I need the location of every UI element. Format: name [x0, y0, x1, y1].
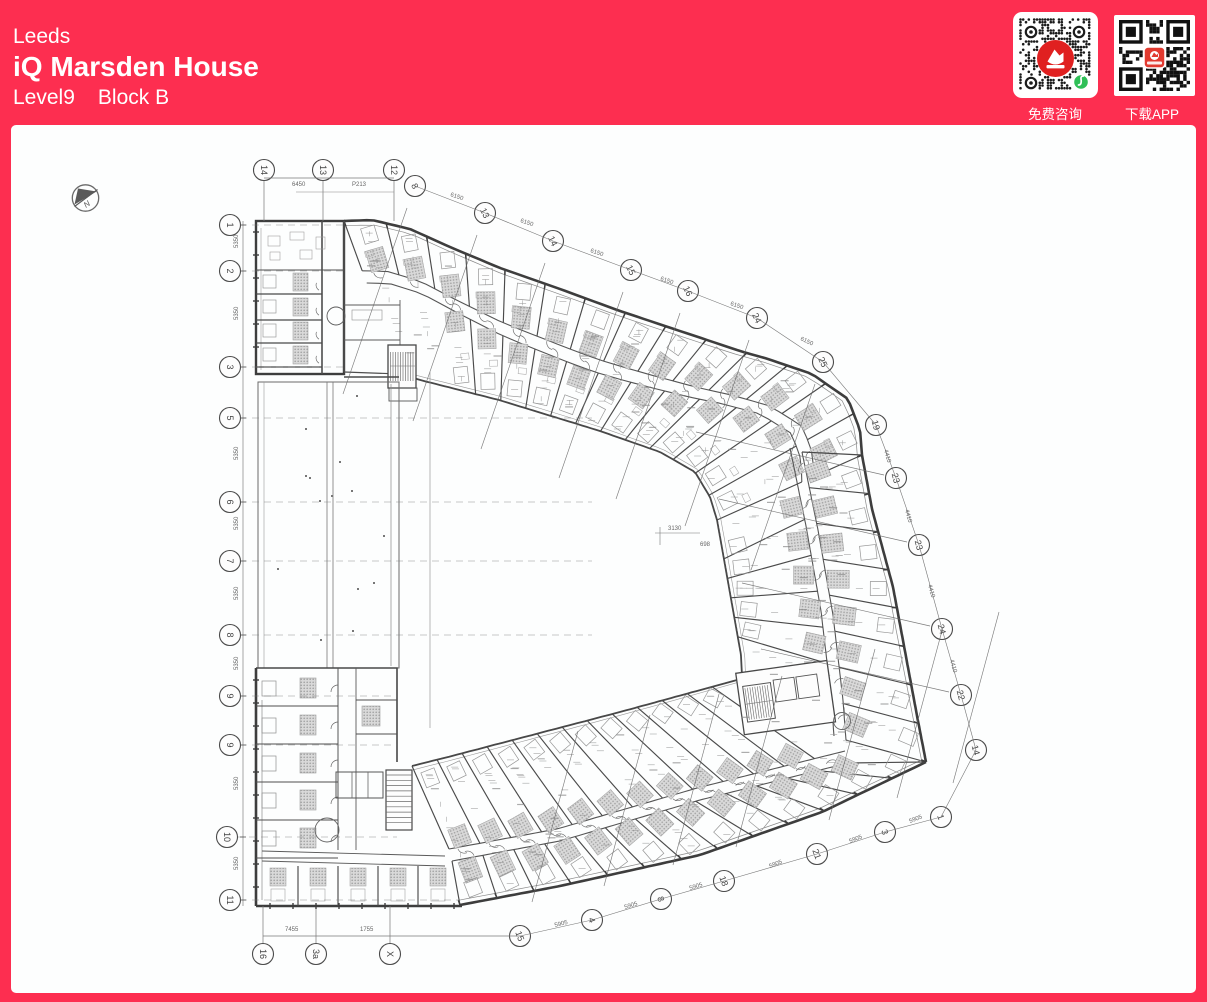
svg-text:5350: 5350	[234, 856, 240, 870]
svg-text:6150: 6150	[799, 336, 814, 347]
svg-text:12: 12	[389, 165, 399, 175]
svg-text:4410: 4410	[926, 584, 935, 599]
svg-text:1755: 1755	[360, 927, 374, 933]
svg-text:N: N	[82, 199, 92, 210]
svg-text:7455: 7455	[285, 927, 299, 933]
svg-text:5350: 5350	[234, 586, 240, 600]
svg-text:5905: 5905	[624, 901, 639, 911]
svg-text:5905: 5905	[769, 859, 784, 870]
svg-text:6: 6	[225, 499, 235, 504]
svg-text:9: 9	[225, 742, 235, 747]
svg-text:5350: 5350	[234, 776, 240, 790]
svg-text:6150: 6150	[589, 248, 604, 258]
svg-text:1: 1	[225, 222, 235, 227]
svg-text:698: 698	[700, 542, 711, 548]
svg-text:16: 16	[258, 949, 268, 959]
svg-text:14: 14	[259, 165, 269, 175]
svg-text:13: 13	[318, 165, 328, 175]
svg-text:P213: P213	[352, 182, 367, 188]
svg-text:3a: 3a	[311, 949, 321, 959]
svg-text:4410: 4410	[903, 509, 912, 524]
svg-text:6150: 6150	[659, 276, 674, 286]
svg-text:11: 11	[225, 895, 235, 904]
svg-text:5350: 5350	[234, 446, 240, 460]
svg-text:5350: 5350	[234, 656, 240, 670]
svg-text:5: 5	[225, 415, 235, 420]
svg-text:4410: 4410	[882, 449, 891, 464]
svg-text:6150: 6150	[519, 218, 534, 228]
svg-text:6150: 6150	[449, 192, 464, 202]
svg-text:5905: 5905	[909, 814, 924, 825]
svg-text:4410: 4410	[948, 659, 957, 674]
svg-text:5350: 5350	[234, 234, 240, 248]
svg-text:10: 10	[222, 832, 232, 842]
svg-text:8: 8	[225, 632, 235, 637]
svg-text:7: 7	[225, 558, 235, 563]
svg-text:5350: 5350	[234, 306, 240, 320]
svg-text:5905: 5905	[554, 920, 569, 929]
svg-text:X: X	[385, 951, 395, 957]
svg-text:5905: 5905	[689, 882, 704, 892]
svg-text:5350: 5350	[234, 516, 240, 530]
svg-text:3130: 3130	[668, 526, 682, 532]
svg-text:2: 2	[225, 268, 235, 273]
svg-text:3: 3	[225, 364, 235, 369]
svg-text:5905: 5905	[849, 834, 864, 845]
svg-text:6450: 6450	[292, 182, 306, 188]
svg-text:9: 9	[225, 693, 235, 698]
